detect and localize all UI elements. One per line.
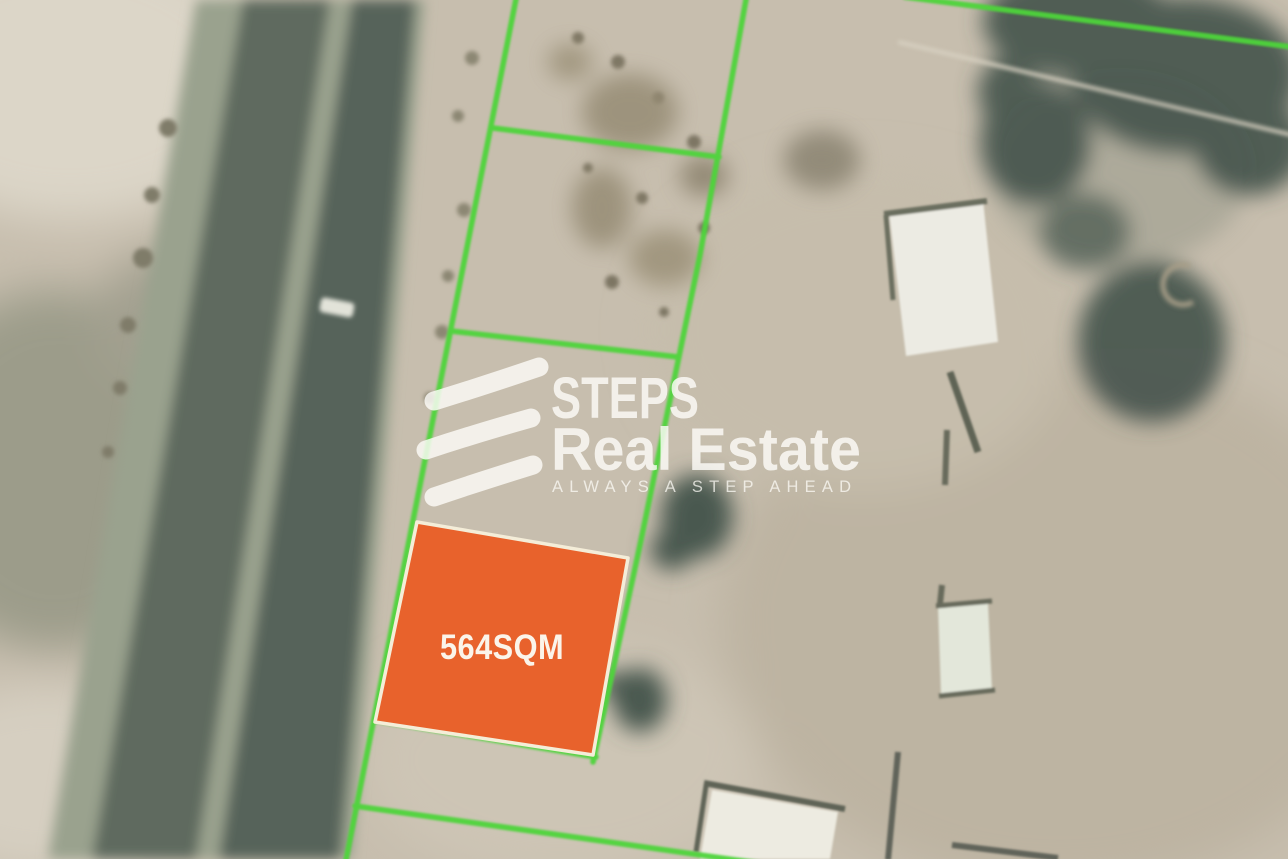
plot-area-label: 564SQM xyxy=(440,628,564,667)
satellite-map: 564SQM STEPS Real Estate ALWAYS A STEP A… xyxy=(0,0,1288,859)
watermark-tagline: ALWAYS A STEP AHEAD xyxy=(552,478,857,496)
map-canvas: 564SQM STEPS Real Estate ALWAYS A STEP A… xyxy=(0,0,1288,859)
watermark-brand-suffix: Real Estate xyxy=(551,416,861,483)
highlighted-plot: 564SQM xyxy=(375,522,628,755)
